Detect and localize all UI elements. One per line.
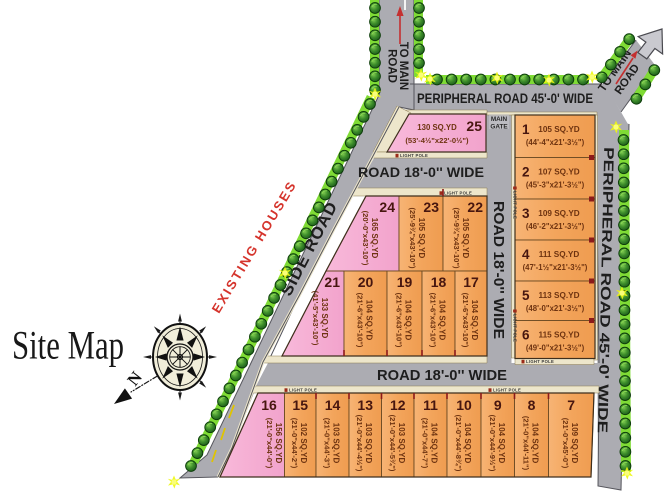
svg-text:GATE: GATE [490, 124, 508, 131]
svg-text:15: 15 [292, 397, 308, 413]
svg-text:ROAD 18'-0'' WIDE: ROAD 18'-0'' WIDE [358, 165, 484, 180]
svg-text:20: 20 [358, 274, 374, 290]
svg-text:2: 2 [522, 165, 530, 180]
svg-text:(25'-9¾"x43'-10"): (25'-9¾"x43'-10") [408, 207, 417, 269]
svg-text:9: 9 [494, 397, 502, 413]
svg-text:105 SQ.YD: 105 SQ.YD [417, 218, 426, 259]
svg-text:(53'-4½"x22'-0½"): (53'-4½"x22'-0½") [405, 136, 469, 145]
svg-text:ROAD 18'-0'' WIDE: ROAD 18'-0'' WIDE [377, 367, 507, 384]
svg-text:LIGHT POLE: LIGHT POLE [444, 191, 472, 196]
svg-text:LIGHT POLE: LIGHT POLE [493, 388, 521, 393]
svg-text:(21'-0"x44'-0"): (21'-0"x44'-0") [265, 418, 274, 469]
svg-text:Site Map: Site Map [12, 323, 124, 368]
svg-text:(21'-0"x44'-11"): (21'-0"x44'-11") [522, 416, 531, 471]
svg-text:(48'-0"x21'-3½"): (48'-0"x21'-3½") [526, 304, 585, 313]
svg-text:16: 16 [261, 397, 277, 413]
svg-text:103 SQ.YD: 103 SQ.YD [397, 423, 406, 464]
svg-text:109 SQ.YD: 109 SQ.YD [570, 423, 579, 464]
svg-text:(21'-0"x44'-2"): (21'-0"x44'-2") [290, 418, 299, 469]
svg-text:(45'-3"x21'-3½"): (45'-3"x21'-3½") [526, 181, 585, 190]
svg-text:MAIN: MAIN [491, 116, 508, 123]
svg-text:104 SQ.YD: 104 SQ.YD [497, 423, 506, 464]
svg-text:104 SQ.YD: 104 SQ.YD [470, 300, 479, 341]
svg-text:(21'-0"x44'-4½"): (21'-0"x44'-4½") [355, 415, 364, 472]
svg-text:PERIPHERAL ROAD 45'-0' WIDE: PERIPHERAL ROAD 45'-0' WIDE [417, 91, 593, 106]
svg-text:22: 22 [467, 199, 483, 215]
svg-text:(20'-0"x43'-10"): (20'-0"x43'-10") [361, 211, 370, 266]
svg-text:130 SQ.YD: 130 SQ.YD [417, 123, 457, 132]
svg-text:(21'-6"x43'-10"): (21'-6"x43'-10") [356, 293, 365, 348]
svg-text:24: 24 [379, 199, 395, 215]
svg-text:109 SQ.YD: 109 SQ.YD [538, 209, 580, 218]
svg-text:4: 4 [522, 247, 530, 262]
svg-text:(41'-5"x43'-10"): (41'-5"x43'-10") [311, 291, 320, 346]
svg-text:113 SQ.YD: 113 SQ.YD [539, 291, 580, 300]
svg-text:11: 11 [423, 397, 438, 413]
svg-text:23: 23 [423, 199, 439, 215]
svg-text:104 SQ.YD: 104 SQ.YD [463, 423, 472, 464]
svg-text:102 SQ.YD: 102 SQ.YD [299, 423, 308, 464]
svg-text:25: 25 [466, 118, 482, 134]
svg-text:133 SQ.YD: 133 SQ.YD [320, 298, 329, 339]
svg-text:5: 5 [522, 288, 530, 303]
svg-text:104 SQ.YD: 104 SQ.YD [365, 300, 374, 341]
svg-text:104 SQ.YD: 104 SQ.YD [531, 423, 540, 464]
svg-text:104 SQ.YD: 104 SQ.YD [430, 423, 439, 464]
svg-text:14: 14 [325, 397, 341, 413]
svg-text:12: 12 [390, 397, 406, 413]
svg-text:ROAD: ROAD [386, 49, 398, 83]
svg-text:103 SQ.YD: 103 SQ.YD [364, 423, 373, 464]
svg-text:(21'-0"x44'-3"): (21'-0"x44'-3") [323, 418, 332, 469]
svg-text:17: 17 [463, 274, 479, 290]
svg-text:13: 13 [357, 397, 373, 413]
svg-text:LIGHT POLE: LIGHT POLE [513, 314, 518, 342]
svg-text:LIGHT POLE: LIGHT POLE [289, 388, 317, 393]
svg-text:115 SQ.YD: 115 SQ.YD [539, 331, 580, 340]
svg-text:(44'-4"x21'-3½"): (44'-4"x21'-3½") [526, 138, 585, 147]
svg-text:103 SQ.YD: 103 SQ.YD [332, 423, 341, 464]
svg-text:(25'-9¾"x43'-10"): (25'-9¾"x43'-10") [452, 207, 461, 269]
svg-text:165 SQ.YD: 165 SQ.YD [370, 218, 379, 259]
svg-text:104 SQ.YD: 104 SQ.YD [438, 300, 447, 341]
svg-text:104 SQ.YD: 104 SQ.YD [404, 300, 413, 341]
svg-text:LIGHT POLE: LIGHT POLE [513, 191, 518, 219]
svg-text:21: 21 [324, 274, 340, 290]
svg-text:18: 18 [431, 274, 447, 290]
svg-text:(46'-2"x21'-3½"): (46'-2"x21'-3½") [526, 222, 585, 231]
svg-text:(21'-0"x45'-0"): (21'-0"x45'-0") [561, 418, 570, 469]
svg-text:(21'-6"x43'-10"): (21'-6"x43'-10") [395, 293, 404, 348]
svg-text:TO MAIN: TO MAIN [397, 42, 409, 90]
svg-text:LIGHT POLE: LIGHT POLE [526, 359, 554, 364]
svg-text:7: 7 [567, 397, 575, 413]
svg-text:ROAD 18'-0'' WIDE: ROAD 18'-0'' WIDE [490, 201, 507, 339]
svg-text:(21'-6"x43'-10"): (21'-6"x43'-10") [461, 293, 470, 348]
svg-text:107 SQ.YD: 107 SQ.YD [538, 168, 580, 177]
svg-text:(21'-6"x43'-10"): (21'-6"x43'-10") [429, 293, 438, 348]
svg-text:105 SQ.YD: 105 SQ.YD [538, 125, 580, 134]
svg-text:(21'-0"x44'-8¾"): (21'-0"x44'-8¾") [454, 415, 463, 472]
svg-text:111 SQ.YD: 111 SQ.YD [539, 250, 580, 259]
svg-text:(47'-1½"x21'-3½"): (47'-1½"x21'-3½") [523, 263, 588, 272]
svg-text:(21'-0"x44'-9½"): (21'-0"x44'-9½") [488, 415, 497, 472]
svg-text:10: 10 [456, 397, 472, 413]
svg-text:LIGHT POLE: LIGHT POLE [400, 153, 428, 158]
svg-text:6: 6 [522, 328, 530, 343]
svg-text:19: 19 [397, 274, 413, 290]
svg-text:(21'-0"x44'-7"): (21'-0"x44'-7") [421, 418, 430, 469]
svg-text:(21'-0"x44'-5¾"): (21'-0"x44'-5¾") [388, 415, 397, 472]
svg-text:105 SQ.YD: 105 SQ.YD [461, 218, 470, 259]
svg-text:(49'-0"x21'-3½"): (49'-0"x21'-3½") [526, 344, 585, 353]
svg-text:8: 8 [528, 397, 536, 413]
svg-text:1: 1 [522, 122, 530, 137]
svg-text:3: 3 [522, 206, 530, 221]
svg-text:156 SQ.YD: 156 SQ.YD [274, 423, 283, 464]
